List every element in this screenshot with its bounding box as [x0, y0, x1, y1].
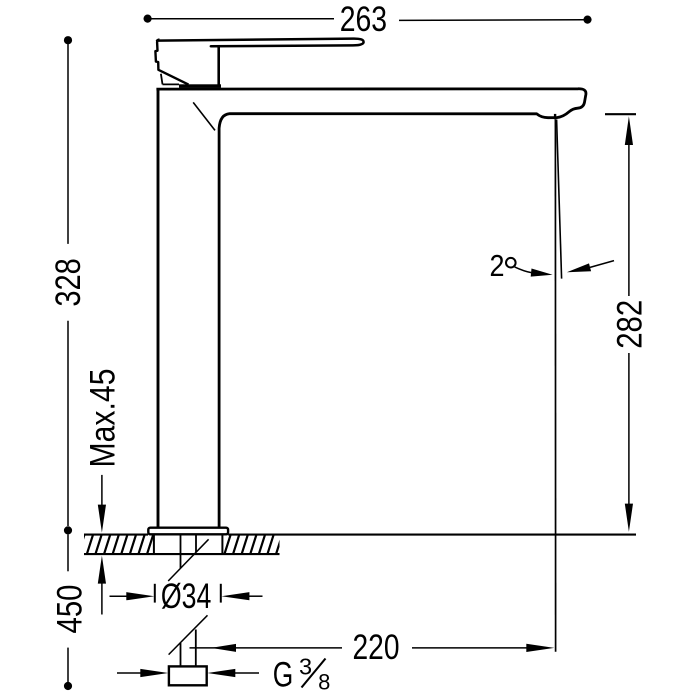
svg-text:Ø34: Ø34: [161, 577, 212, 616]
svg-text:2: 2: [490, 248, 505, 283]
svg-text:8: 8: [318, 670, 330, 695]
svg-text:G: G: [273, 655, 294, 694]
svg-text:Max.45: Max.45: [84, 369, 123, 468]
svg-text:282: 282: [611, 300, 650, 349]
svg-text:328: 328: [49, 258, 88, 307]
svg-text:220: 220: [353, 628, 400, 667]
svg-text:263: 263: [340, 0, 387, 39]
svg-text:450: 450: [51, 585, 90, 634]
